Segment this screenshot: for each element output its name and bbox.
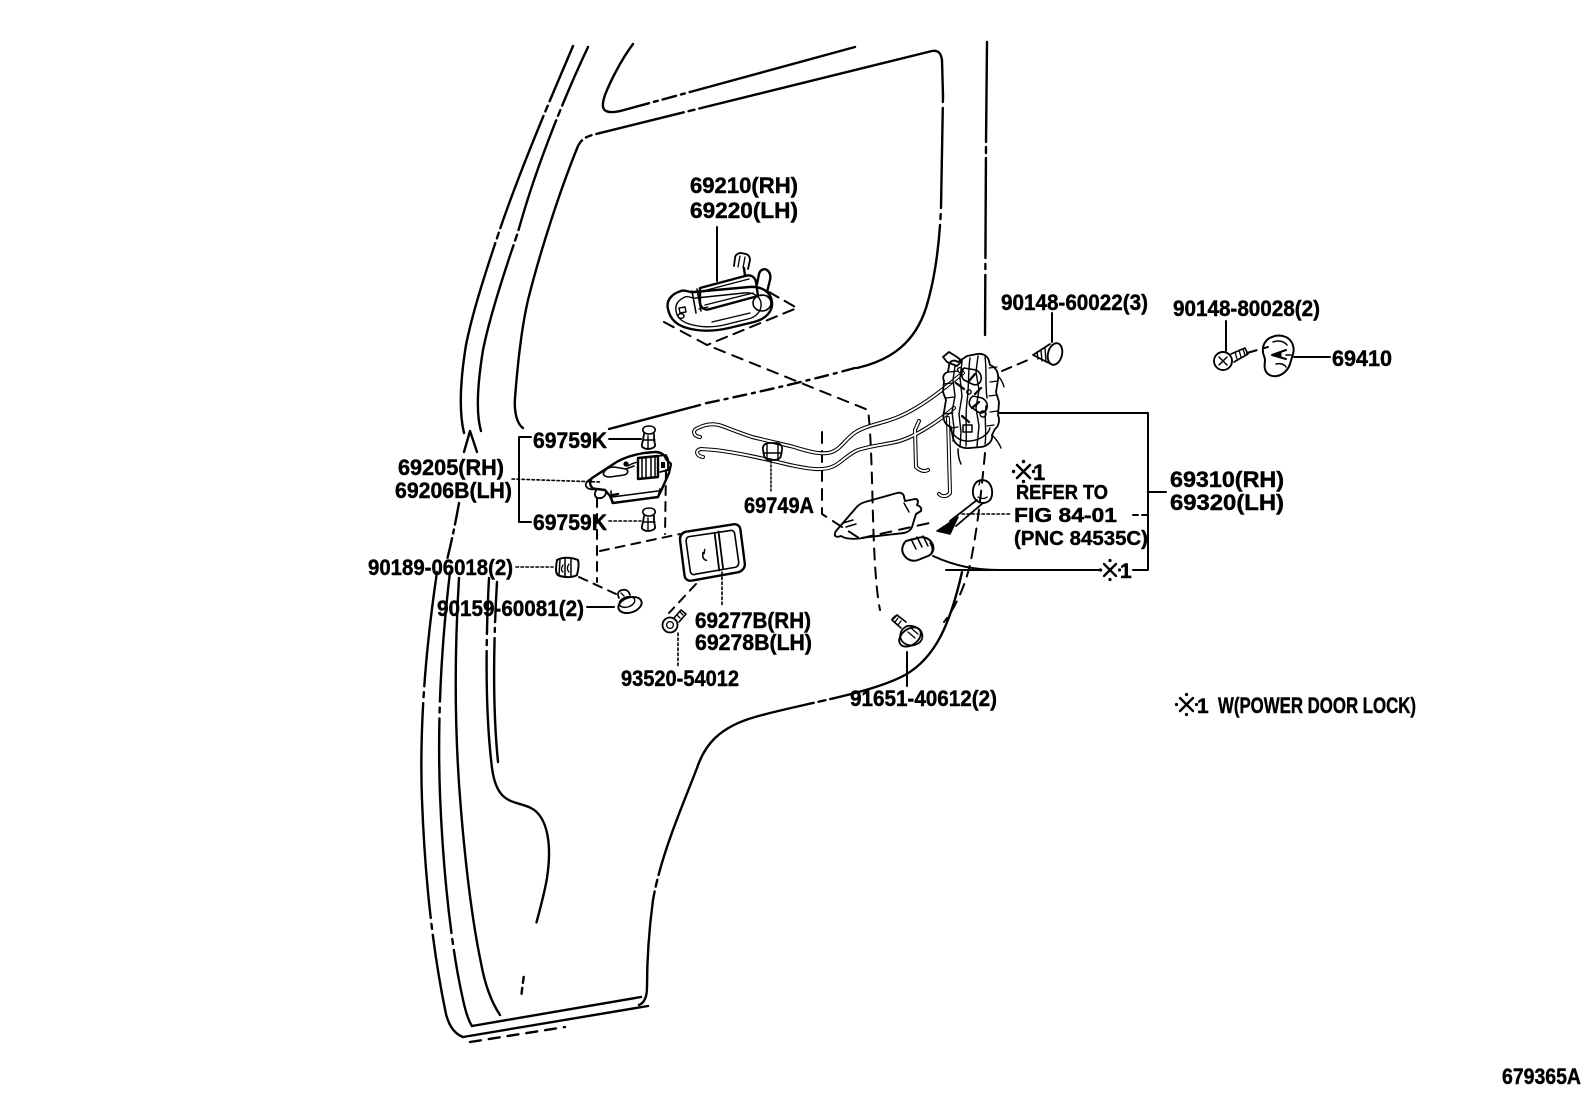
svg-text:69206B(LH): 69206B(LH): [395, 478, 512, 503]
svg-text:90148-60022(3): 90148-60022(3): [1001, 290, 1148, 315]
svg-text:69749A: 69749A: [744, 493, 814, 518]
svg-text:69210(RH): 69210(RH): [690, 173, 798, 198]
svg-text:REFER TO: REFER TO: [1016, 482, 1108, 504]
svg-text:69320(LH): 69320(LH): [1170, 490, 1284, 515]
svg-text:69278B(LH): 69278B(LH): [695, 630, 812, 655]
svg-text:679365A: 679365A: [1502, 1064, 1581, 1089]
svg-text:1: 1: [1197, 695, 1209, 718]
svg-text:69759K: 69759K: [533, 510, 607, 535]
svg-text:69205(RH): 69205(RH): [398, 455, 504, 480]
svg-text:93520-54012: 93520-54012: [621, 666, 739, 691]
svg-text:69410: 69410: [1332, 346, 1392, 371]
svg-text:90189-06018(2): 90189-06018(2): [368, 555, 513, 580]
svg-text:1: 1: [1120, 560, 1132, 583]
svg-text:(PNC 84535C): (PNC 84535C): [1014, 528, 1148, 550]
svg-text:W(POWER DOOR LOCK): W(POWER DOOR LOCK): [1218, 693, 1416, 718]
svg-text:69759K: 69759K: [533, 428, 607, 453]
svg-text:90148-80028(2): 90148-80028(2): [1173, 296, 1320, 321]
svg-text:90159-60081(2): 90159-60081(2): [437, 596, 584, 621]
svg-text:91651-40612(2): 91651-40612(2): [850, 686, 997, 711]
svg-text:69310(RH): 69310(RH): [1170, 467, 1284, 492]
svg-text:69220(LH): 69220(LH): [690, 198, 798, 223]
svg-text:FIG 84-01: FIG 84-01: [1014, 505, 1117, 527]
